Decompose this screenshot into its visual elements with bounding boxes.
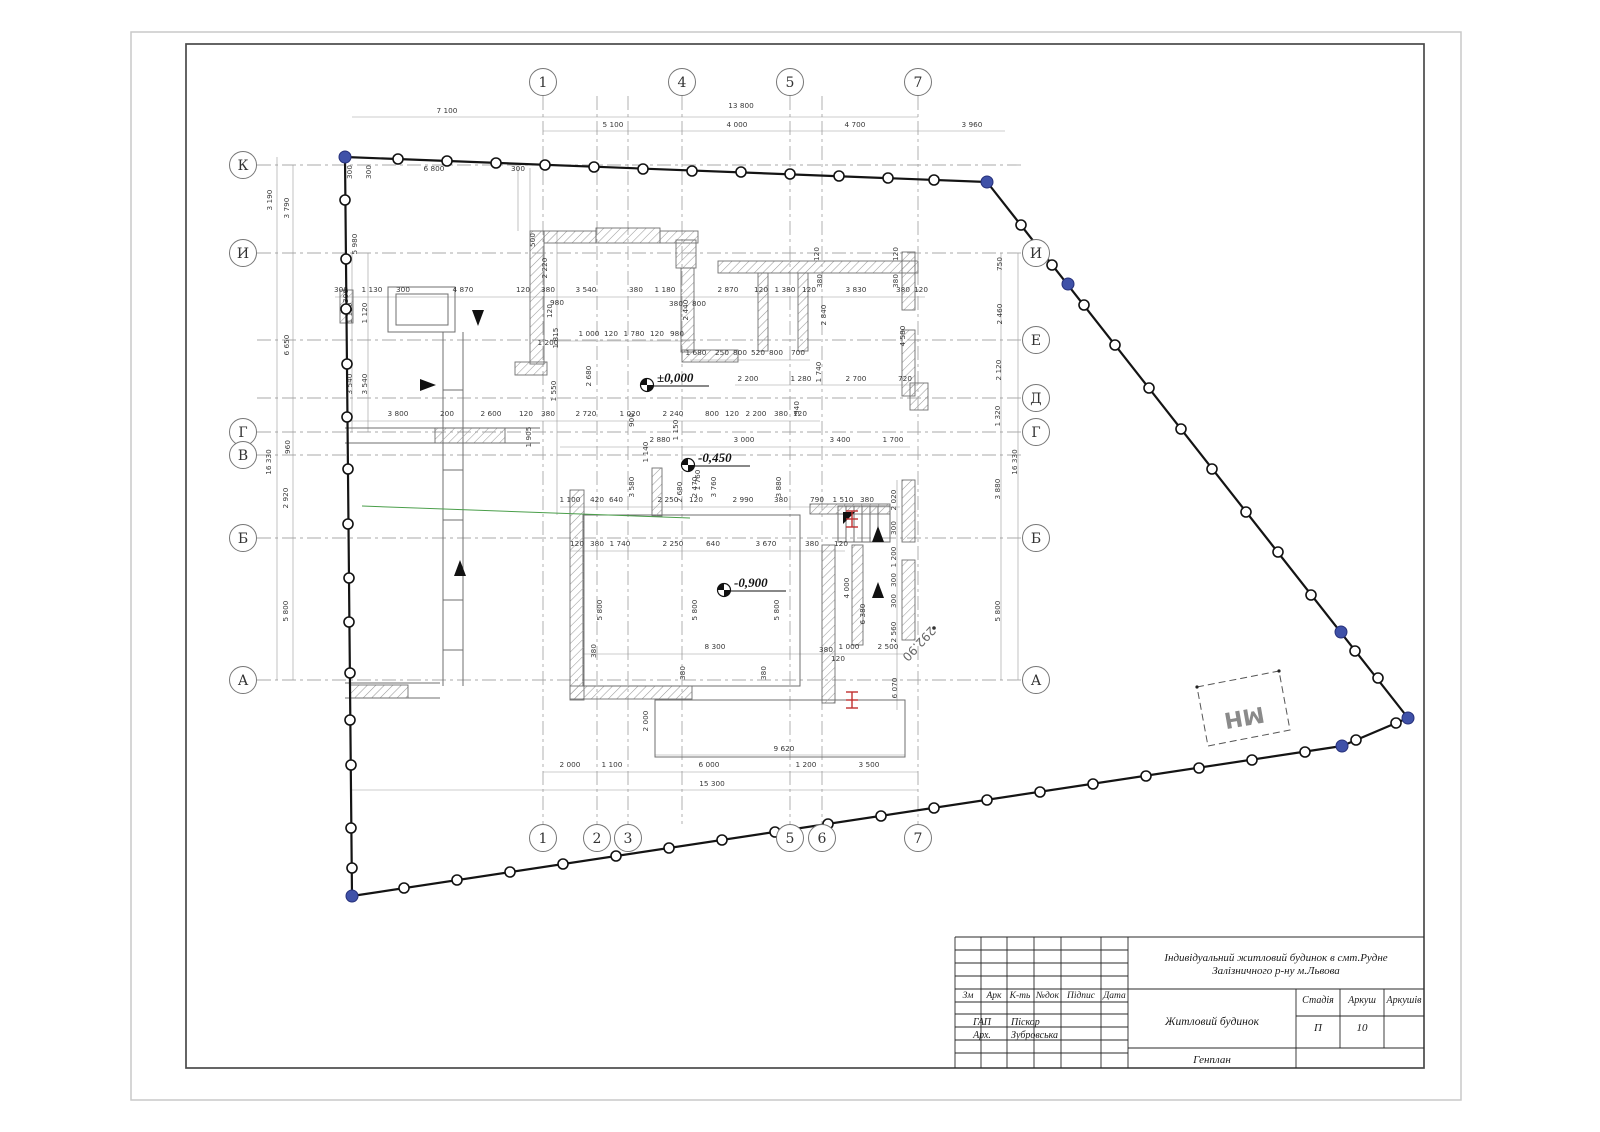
- titleblock-role-gap: ГАП: [957, 1016, 1007, 1029]
- titleblock-role-arch: Арх.: [957, 1029, 1007, 1042]
- titleblock-sheet-label: Аркуш: [1341, 994, 1383, 1007]
- dim-text: 1 100: [560, 495, 581, 504]
- dim-text: 6 800: [424, 164, 445, 173]
- dim-text: 3 760: [709, 476, 718, 497]
- dim-text: 3 000: [734, 435, 755, 444]
- survey-point: [1241, 507, 1251, 517]
- dim-text: 520: [751, 348, 765, 357]
- dim-text: 3 880: [774, 476, 783, 497]
- dim-text: 380: [759, 666, 768, 680]
- axis-bubbles: 1123455677КИИЕДГГВББАА: [230, 69, 1050, 852]
- dim-text: 380: [590, 539, 604, 548]
- dim-text: 2 920: [281, 487, 290, 508]
- dim-text: 1 200: [796, 760, 817, 769]
- project-line1: Індивідуальний житловий будинок в смт.Ру…: [1130, 952, 1422, 965]
- survey-point: [343, 464, 353, 474]
- dim-text: 3 190: [265, 189, 274, 210]
- dim-text: 5 800: [690, 599, 699, 620]
- dim-text: 120: [545, 304, 554, 318]
- dim-text: 200: [440, 409, 454, 418]
- dim-text: 120: [725, 409, 739, 418]
- survey-point: [929, 175, 939, 185]
- survey-point: [347, 863, 357, 873]
- dim-text: 380: [815, 274, 824, 288]
- dim-text: 4 870: [453, 285, 474, 294]
- dim-text: 6 380: [858, 603, 867, 624]
- dim-text: 1 280: [791, 374, 812, 383]
- survey-point: [1194, 763, 1204, 773]
- dim-text: 500: [528, 233, 537, 247]
- axis-label-А: А: [1031, 673, 1042, 689]
- survey-point: [883, 173, 893, 183]
- dim-text: 16 330: [264, 449, 273, 475]
- dim-text: 3 960: [962, 120, 983, 129]
- dim-text: 3 540: [360, 373, 369, 394]
- dim-text: 300: [396, 285, 410, 294]
- dim-text: 300: [511, 164, 525, 173]
- hatched-wall: [652, 468, 662, 516]
- dim-text: 5 980: [350, 233, 359, 254]
- dim-text: 3 400: [830, 435, 851, 444]
- dim-text: 2 470: [690, 476, 699, 497]
- survey-point: [1391, 718, 1401, 728]
- titleblock-name-zubrovska: Зубровська: [1011, 1029, 1058, 1042]
- dim-text: 4 000: [842, 577, 851, 598]
- dim-text: 120: [834, 539, 848, 548]
- axis-label-6: 6: [818, 831, 827, 847]
- survey-point: [1351, 735, 1361, 745]
- hatched-wall: [570, 686, 692, 699]
- axis-label-1: 1: [539, 75, 548, 91]
- dim-text: 3 880: [993, 478, 1002, 499]
- titleblock-col-pidpys: Підпис: [1061, 990, 1101, 1003]
- dim-text: 300: [345, 165, 354, 179]
- hatched-wall: [902, 480, 915, 542]
- dim-text: 120: [812, 247, 821, 261]
- titleblock-doc-name: Генплан: [1130, 1054, 1294, 1067]
- axis-label-5: 5: [786, 831, 795, 847]
- dim-text: 7 100: [437, 106, 458, 115]
- dim-text: 2 600: [481, 409, 502, 418]
- survey-point: [589, 162, 599, 172]
- survey-point: [664, 843, 674, 853]
- dim-text: 2 700: [846, 374, 867, 383]
- dim-text: 380: [589, 644, 598, 658]
- dim-text: 4 000: [727, 120, 748, 129]
- axis-label-А: А: [238, 673, 249, 689]
- dim-text: 9 620: [774, 744, 795, 753]
- dim-text: 6 000: [699, 760, 720, 769]
- survey-point: [341, 254, 351, 264]
- dim-text: 1 000: [839, 642, 860, 651]
- elevation-value: -0,450: [698, 450, 732, 465]
- paper-edge: [131, 32, 1461, 1100]
- survey-point: [638, 164, 648, 174]
- titleblock-stage-label: Стадія: [1297, 994, 1339, 1007]
- dim-text: 380: [629, 285, 643, 294]
- survey-point: [452, 875, 462, 885]
- dim-text: 720: [898, 374, 912, 383]
- axis-grid: [257, 96, 1022, 824]
- spot-elevation-point: [932, 626, 936, 630]
- dim-text: 3 670: [756, 539, 777, 548]
- survey-point: [717, 835, 727, 845]
- dim-text: 15 300: [699, 779, 725, 788]
- axis-label-7: 7: [914, 831, 923, 847]
- dim-text: 2 250: [663, 539, 684, 548]
- nm-corner-mark: [1277, 669, 1280, 672]
- green-utility-line: [362, 506, 690, 518]
- dim-text: 1 320: [993, 405, 1002, 426]
- survey-point: [1110, 340, 1120, 350]
- survey-point: [393, 154, 403, 164]
- dim-text: 16 330: [1010, 449, 1019, 475]
- axis-label-Б: Б: [1031, 531, 1041, 547]
- hatched-wall: [515, 362, 547, 375]
- elevation-symbol-quadrant: [682, 459, 689, 466]
- survey-point: [687, 166, 697, 176]
- survey-point: [982, 795, 992, 805]
- wall-outline: [396, 294, 448, 325]
- hatched-wall: [902, 560, 915, 640]
- dim-text: 1 200: [889, 546, 898, 567]
- hatched-wall: [718, 261, 918, 273]
- dim-text: 3 500: [859, 760, 880, 769]
- dim-text: 300: [889, 594, 898, 608]
- survey-corner-point: [339, 151, 351, 163]
- survey-point: [1035, 787, 1045, 797]
- dim-text: 250: [715, 348, 729, 357]
- survey-point: [341, 304, 351, 314]
- dim-text: 380: [891, 274, 900, 288]
- nm-corner-mark: [1195, 685, 1198, 688]
- axis-label-3: 3: [624, 831, 633, 847]
- survey-point: [876, 811, 886, 821]
- direction-arrows: [420, 310, 884, 598]
- elevation-value: -0,900: [734, 575, 768, 590]
- dim-text: 1 700: [883, 435, 904, 444]
- survey-point: [344, 617, 354, 627]
- direction-arrow: [872, 526, 884, 542]
- dim-text: 900: [627, 413, 636, 427]
- dim-text: 8 300: [705, 642, 726, 651]
- axis-label-2: 2: [593, 831, 602, 847]
- dim-text: 120: [516, 285, 530, 294]
- axis-label-К: К: [238, 158, 249, 174]
- dim-text: 300: [889, 521, 898, 535]
- survey-point: [345, 715, 355, 725]
- titleblock-project-name: Індивідуальний житловий будинок в смт.Ру…: [1130, 952, 1422, 978]
- survey-corner-point: [1062, 278, 1074, 290]
- survey-point: [1016, 220, 1026, 230]
- elevation-value: ±0,000: [657, 370, 694, 385]
- elevation-symbol-quadrant: [718, 584, 725, 591]
- axis-label-Д: Д: [1030, 391, 1041, 407]
- dim-text: 790: [810, 495, 824, 504]
- dim-text: 640: [609, 495, 623, 504]
- survey-point: [1144, 383, 1154, 393]
- survey-point: [1141, 771, 1151, 781]
- direction-arrow: [472, 310, 484, 326]
- dim-text: 3 800: [388, 409, 409, 418]
- dim-text: 1 740: [610, 539, 631, 548]
- survey-point: [1300, 747, 1310, 757]
- dim-text: 3 540: [576, 285, 597, 294]
- hatched-wall: [544, 231, 596, 243]
- dim-text: 1 905: [524, 427, 533, 448]
- dim-text: 380: [774, 409, 788, 418]
- titleblock-object-name: Житловий будинок: [1130, 1016, 1294, 1029]
- survey-point: [346, 760, 356, 770]
- dim-text: 120: [831, 654, 845, 663]
- dim-text: 1 000: [579, 329, 600, 338]
- dim-text: 6 070: [890, 677, 899, 698]
- axis-label-И: И: [237, 246, 249, 262]
- survey-point: [1207, 464, 1217, 474]
- axis-label-Г: Г: [238, 425, 247, 441]
- survey-point: [1350, 646, 1360, 656]
- hatched-wall: [596, 228, 660, 243]
- dim-text: 2 680: [675, 481, 684, 502]
- titleblock-col-ndok: №док: [1033, 990, 1062, 1003]
- survey-corner-point: [1336, 740, 1348, 752]
- hatched-wall: [910, 383, 928, 410]
- dim-text: 120: [519, 409, 533, 418]
- survey-point: [491, 158, 501, 168]
- dim-text: 300: [364, 165, 373, 179]
- survey-point: [1373, 673, 1383, 683]
- survey-corner-point: [1335, 626, 1347, 638]
- dim-text: 4 580: [898, 325, 907, 346]
- dim-text: 3 580: [627, 476, 636, 497]
- direction-arrow: [420, 379, 436, 391]
- dim-text: 800: [769, 348, 783, 357]
- dim-text: 120: [570, 539, 584, 548]
- dim-text: 380: [541, 409, 555, 418]
- dim-text: 640: [706, 539, 720, 548]
- dim-text: 1 815: [551, 328, 560, 349]
- survey-point: [1047, 260, 1057, 270]
- dim-text: 1 780: [624, 329, 645, 338]
- dim-text: 380: [541, 285, 555, 294]
- hatched-wall: [676, 240, 696, 268]
- survey-point: [611, 851, 621, 861]
- dim-text: 2 240: [663, 409, 684, 418]
- titleblock-sheet-value: 10: [1341, 1022, 1383, 1035]
- axis-label-И: И: [1030, 246, 1042, 262]
- dim-text: 2 460: [995, 303, 1004, 324]
- dim-text: 1 180: [655, 285, 676, 294]
- survey-point: [340, 195, 350, 205]
- survey-point: [399, 883, 409, 893]
- dim-text: 1 740: [814, 361, 823, 382]
- dim-text: 2 680: [584, 365, 593, 386]
- dim-text: 800: [733, 348, 747, 357]
- hatched-wall: [822, 545, 835, 703]
- dim-text: 1 680: [686, 348, 707, 357]
- survey-point: [342, 412, 352, 422]
- survey-point: [343, 519, 353, 529]
- dim-text: 1 380: [775, 285, 796, 294]
- dim-text: 6 650: [282, 334, 291, 355]
- dim-text: 2 720: [576, 409, 597, 418]
- survey-point: [1306, 590, 1316, 600]
- titleblock-stage-value: П: [1297, 1022, 1339, 1035]
- nm-box: МН: [1195, 669, 1290, 746]
- survey-point: [505, 867, 515, 877]
- dim-text: 3 790: [282, 197, 291, 218]
- hatched-wall: [902, 252, 915, 310]
- dim-text: 2 000: [560, 760, 581, 769]
- dim-text: 120: [604, 329, 618, 338]
- dim-text: 2 200: [738, 374, 759, 383]
- hatched-wall: [435, 428, 505, 443]
- survey-point: [834, 171, 844, 181]
- dim-text: 940: [792, 401, 801, 415]
- dim-text: 3 830: [846, 285, 867, 294]
- dim-text: 1 510: [833, 495, 854, 504]
- dim-text: 2 120: [994, 359, 1003, 380]
- survey-point: [785, 169, 795, 179]
- hatched-wall: [852, 545, 863, 645]
- survey-point: [1079, 300, 1089, 310]
- dim-text: 2 000: [641, 710, 650, 731]
- elevation-symbol-quadrant: [641, 379, 648, 386]
- hatched-wall: [350, 685, 408, 698]
- dim-text: 2 200: [746, 409, 767, 418]
- survey-point: [442, 156, 452, 166]
- survey-corner-point: [346, 890, 358, 902]
- dim-text: 800: [692, 299, 706, 308]
- dim-text: 2 870: [718, 285, 739, 294]
- dim-text: 5 100: [603, 120, 624, 129]
- survey-corner-point: [1402, 712, 1414, 724]
- nm-label: МН: [1222, 701, 1266, 733]
- dim-text: 5 800: [772, 599, 781, 620]
- dim-text: 700: [791, 348, 805, 357]
- survey-point: [736, 167, 746, 177]
- dim-text: 960: [283, 440, 292, 454]
- axis-label-Г: Г: [1031, 425, 1040, 441]
- project-line2: Залізничного р-ну м.Львова: [1130, 965, 1422, 978]
- titleblock-col-ark: Арк: [981, 990, 1007, 1003]
- dim-text: 1 130: [362, 285, 383, 294]
- dim-text: 13 800: [728, 101, 754, 110]
- dim-text: 980: [670, 329, 684, 338]
- survey-point: [540, 160, 550, 170]
- dim-text: 2 560: [889, 621, 898, 642]
- axis-label-4: 4: [678, 75, 687, 91]
- dim-text: 2 880: [650, 435, 671, 444]
- dim-text: 420: [590, 495, 604, 504]
- titleblock-col-kt: К-ть: [1006, 990, 1034, 1003]
- direction-arrow: [454, 560, 466, 576]
- dim-text: 5 800: [595, 599, 604, 620]
- titleblock-name-piskor: Піскор: [1011, 1016, 1040, 1029]
- dim-text: 120: [754, 285, 768, 294]
- survey-point: [346, 823, 356, 833]
- dim-text: 750: [995, 257, 1004, 271]
- direction-arrow: [872, 582, 884, 598]
- survey-point: [342, 359, 352, 369]
- dim-text: 5 800: [281, 600, 290, 621]
- dim-text: 380: [819, 645, 833, 654]
- dim-text: 380: [678, 666, 687, 680]
- titleblock-col-data: Дата: [1101, 990, 1128, 1003]
- axis-label-Е: Е: [1031, 333, 1041, 349]
- survey-point: [929, 803, 939, 813]
- hatched-wall: [570, 490, 584, 700]
- dim-text: 300: [889, 573, 898, 587]
- dim-text: 4 700: [845, 120, 866, 129]
- dim-text: 1 140: [641, 441, 650, 462]
- dim-text: 2 220: [540, 257, 549, 278]
- dim-text: 380: [860, 495, 874, 504]
- survey-point: [1088, 779, 1098, 789]
- axis-label-5: 5: [786, 75, 795, 91]
- survey-point: [1247, 755, 1257, 765]
- sheet-frame: [131, 32, 1461, 1100]
- titleblock-sheets-label: Аркушів: [1385, 994, 1423, 1007]
- axis-label-В: В: [238, 448, 248, 464]
- axis-label-1: 1: [539, 831, 548, 847]
- utility-line: [362, 506, 690, 518]
- titleblock-col-zm: Зм: [955, 990, 981, 1003]
- survey-point: [1176, 424, 1186, 434]
- dim-text: 800: [705, 409, 719, 418]
- dim-text: 2 840: [819, 304, 828, 325]
- dim-text: 380: [805, 539, 819, 548]
- hatched-walls: [340, 228, 928, 703]
- elevation-symbol-quadrant: [647, 385, 654, 392]
- drawing-frame: [186, 44, 1424, 1068]
- elevation-symbol-quadrant: [724, 590, 731, 597]
- axis-label-Б: Б: [238, 531, 248, 547]
- survey-point: [558, 859, 568, 869]
- dim-text: 120: [891, 247, 900, 261]
- dim-text: 2 440: [681, 299, 690, 320]
- drawing-page: 7 10013 8005 1004 0004 7003 9603003006 8…: [0, 0, 1600, 1132]
- dim-text: 1 550: [549, 380, 558, 401]
- dim-text: 1 150: [671, 419, 680, 440]
- dim-text: 1 100: [602, 760, 623, 769]
- survey-corner-point: [981, 176, 993, 188]
- dim-text: 120: [914, 285, 928, 294]
- dim-text: 2 020: [889, 489, 898, 510]
- axis-label-7: 7: [914, 75, 923, 91]
- survey-point: [1273, 547, 1283, 557]
- dim-text: 120: [650, 329, 664, 338]
- dim-text: 2 990: [733, 495, 754, 504]
- dim-text: 1 120: [360, 302, 369, 323]
- dim-text: 5 800: [993, 600, 1002, 621]
- survey-point: [344, 573, 354, 583]
- direction-arrow: [843, 512, 855, 524]
- survey-point: [345, 668, 355, 678]
